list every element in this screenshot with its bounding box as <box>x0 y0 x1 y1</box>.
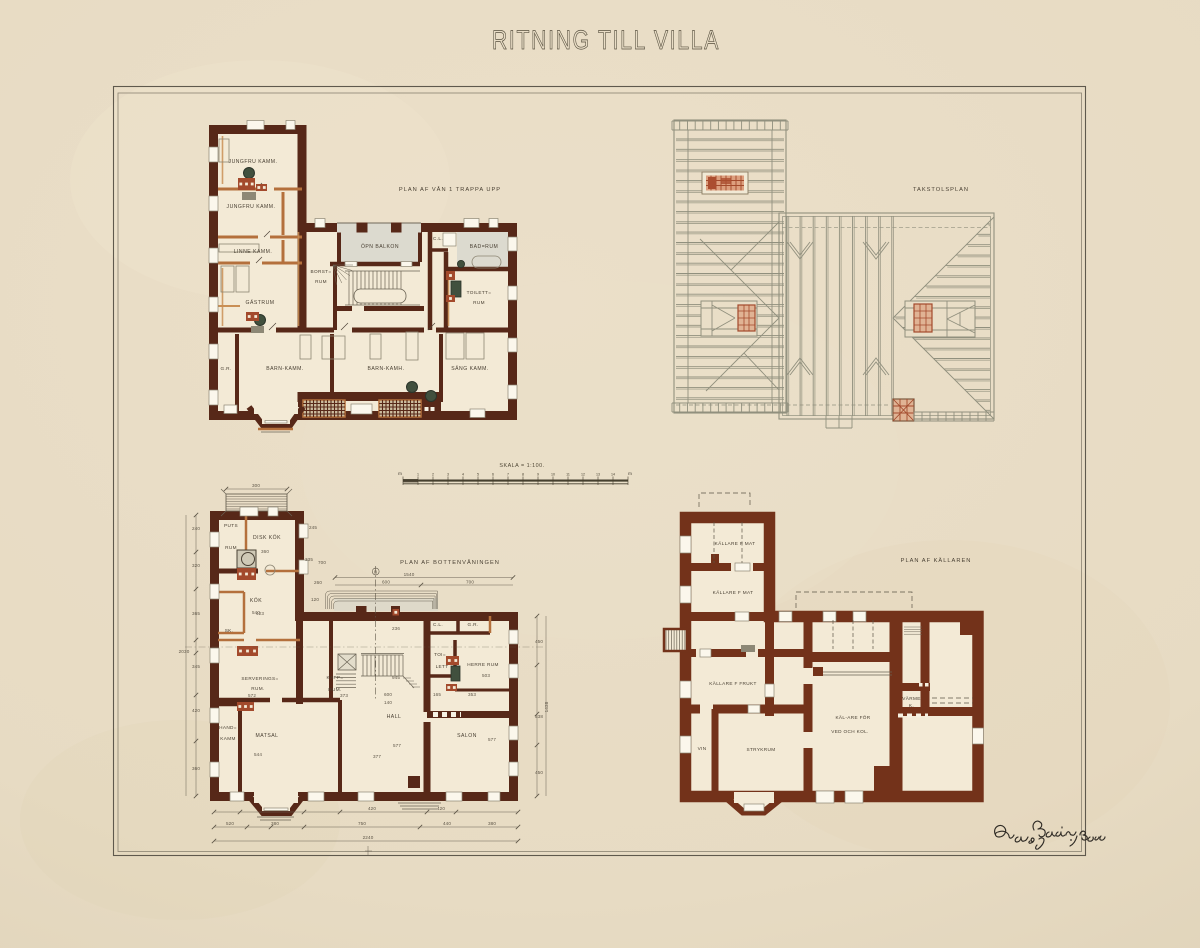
svg-text:2240: 2240 <box>363 835 374 840</box>
svg-text:RITNING TILL VILLA: RITNING TILL VILLA <box>492 26 720 56</box>
svg-text:RUM: RUM <box>315 279 327 284</box>
svg-text:572: 572 <box>248 693 256 698</box>
svg-text:1438: 1438 <box>544 701 549 712</box>
svg-text:RUM.: RUM. <box>328 687 341 692</box>
svg-text:SERVERINGS=: SERVERINGS= <box>241 676 278 681</box>
svg-text:450: 450 <box>535 770 543 775</box>
svg-text:KAPP=: KAPP= <box>327 675 344 680</box>
svg-text:300: 300 <box>252 483 260 488</box>
svg-text:377: 377 <box>373 754 381 759</box>
svg-text:BORST=: BORST= <box>311 269 332 274</box>
svg-text:360: 360 <box>261 549 269 554</box>
svg-text:PLAN AF VÅN 1 TRAPPA UPP: PLAN AF VÅN 1 TRAPPA UPP <box>399 186 501 193</box>
svg-text:VIN: VIN <box>698 746 707 751</box>
svg-text:245: 245 <box>309 525 317 530</box>
svg-text:7: 7 <box>507 473 509 477</box>
svg-text:1: 1 <box>417 473 419 477</box>
svg-text:600: 600 <box>382 580 390 585</box>
svg-text:LETT: LETT <box>436 664 449 669</box>
svg-text:8: 8 <box>522 473 524 477</box>
svg-text:420: 420 <box>368 806 376 811</box>
svg-text:373: 373 <box>340 693 348 698</box>
svg-text:5: 5 <box>477 473 479 477</box>
svg-text:STRYKRUM: STRYKRUM <box>746 747 775 752</box>
svg-text:240: 240 <box>192 526 200 531</box>
svg-text:GÄSTRUM: GÄSTRUM <box>246 299 275 306</box>
svg-text:2: 2 <box>432 473 434 477</box>
svg-text:335: 335 <box>305 557 313 562</box>
svg-text:HERRE RUM: HERRE RUM <box>467 662 499 667</box>
svg-text:236: 236 <box>392 626 400 631</box>
svg-text:1540: 1540 <box>404 572 415 577</box>
svg-text:m: m <box>398 471 402 476</box>
svg-text:G.R.: G.R. <box>220 366 231 371</box>
svg-text:HALL: HALL <box>387 714 402 720</box>
svg-text:120: 120 <box>311 597 319 602</box>
svg-text:ÖPN BALKON: ÖPN BALKON <box>361 243 399 250</box>
svg-text:165: 165 <box>433 692 441 697</box>
svg-text:700: 700 <box>466 580 474 585</box>
svg-text:365: 365 <box>192 611 200 616</box>
svg-text:13: 13 <box>596 473 600 477</box>
svg-text:LINNE KAMM.: LINNE KAMM. <box>234 249 273 255</box>
svg-text:G.R.: G.R. <box>467 622 478 627</box>
svg-text:PLAN AF BOTTENVÅNINGEN: PLAN AF BOTTENVÅNINGEN <box>400 559 500 566</box>
svg-text:RUM: RUM <box>473 300 485 305</box>
svg-text:TAKSTOLSPLAN: TAKSTOLSPLAN <box>913 187 969 193</box>
svg-text:450: 450 <box>535 639 543 644</box>
svg-text:577: 577 <box>488 737 496 742</box>
svg-text:6: 6 <box>492 473 494 477</box>
svg-text:3: 3 <box>447 473 449 477</box>
svg-text:600: 600 <box>384 692 392 697</box>
svg-text:544: 544 <box>254 752 262 757</box>
svg-text:380: 380 <box>488 821 496 826</box>
svg-text:520: 520 <box>226 821 234 826</box>
svg-text:C.L.: C.L. <box>433 236 443 241</box>
svg-text:VÄRME: VÄRME <box>902 695 920 701</box>
svg-text:9: 9 <box>537 473 539 477</box>
svg-text:440: 440 <box>443 821 451 826</box>
svg-text:700: 700 <box>318 560 326 565</box>
svg-text:HAND=: HAND= <box>219 725 237 730</box>
svg-text:KÄLLARE F MAT: KÄLLARE F MAT <box>715 540 756 546</box>
svg-text:KÄL-ARE FÖR: KÄL-ARE FÖR <box>835 714 870 720</box>
svg-text:RUM.: RUM. <box>251 686 264 691</box>
svg-text:K.: K. <box>909 703 914 708</box>
svg-text:SK.: SK. <box>225 628 234 633</box>
svg-text:14: 14 <box>611 473 615 477</box>
svg-text:577: 577 <box>393 743 401 748</box>
svg-text:345: 345 <box>192 664 200 669</box>
svg-text:2030: 2030 <box>179 649 190 654</box>
svg-text:KÄLLARE F MAT: KÄLLARE F MAT <box>713 589 754 595</box>
svg-text:420: 420 <box>437 806 445 811</box>
svg-text:SALON: SALON <box>457 733 477 739</box>
svg-text:4: 4 <box>462 473 464 477</box>
svg-text:JUNGFRU KAMM.: JUNGFRU KAMM. <box>227 204 276 210</box>
svg-text:750: 750 <box>358 821 366 826</box>
svg-text:RUM: RUM <box>225 545 237 550</box>
svg-text:503: 503 <box>482 673 490 678</box>
svg-text:10: 10 <box>551 473 555 477</box>
svg-text:360: 360 <box>192 766 200 771</box>
svg-text:SKALA = 1:100.: SKALA = 1:100. <box>499 463 544 469</box>
svg-text:353: 353 <box>468 692 476 697</box>
svg-text:BARN-KAMH.: BARN-KAMH. <box>368 366 405 372</box>
svg-text:KAMM: KAMM <box>220 736 235 741</box>
svg-text:MATSAL: MATSAL <box>255 733 278 739</box>
svg-text:SÄNG KAMM.: SÄNG KAMM. <box>451 365 489 372</box>
svg-text:538: 538 <box>535 714 543 719</box>
svg-text:12: 12 <box>581 473 585 477</box>
svg-text:140: 140 <box>384 700 392 705</box>
svg-text:540: 540 <box>252 610 260 615</box>
svg-text:380: 380 <box>271 821 279 826</box>
svg-text:VED OCH KOL.: VED OCH KOL. <box>831 729 869 734</box>
svg-text:C.L.: C.L. <box>433 622 443 627</box>
svg-text:m: m <box>628 471 632 476</box>
svg-text:DISK KÖK: DISK KÖK <box>253 534 281 541</box>
svg-text:BAD=RUM: BAD=RUM <box>470 244 499 250</box>
svg-text:JUNGFRU KAMM.: JUNGFRU KAMM. <box>229 159 278 165</box>
svg-text:PLAN AF KÄLLAREN: PLAN AF KÄLLAREN <box>901 557 972 564</box>
svg-text:KÄLLARE F FRUKT: KÄLLARE F FRUKT <box>709 680 756 686</box>
svg-text:945: 945 <box>392 675 400 680</box>
svg-text:TOI=: TOI= <box>434 652 446 657</box>
svg-text:BARN-KAMM.: BARN-KAMM. <box>266 366 304 372</box>
svg-text:B: B <box>374 570 377 575</box>
svg-text:KÖK: KÖK <box>250 597 262 604</box>
svg-text:260: 260 <box>314 580 322 585</box>
svg-text:420: 420 <box>192 708 200 713</box>
svg-text:11: 11 <box>566 473 570 477</box>
svg-text:320: 320 <box>192 563 200 568</box>
svg-text:PUTS: PUTS <box>224 523 238 528</box>
svg-text:TOILETT=: TOILETT= <box>467 290 492 295</box>
